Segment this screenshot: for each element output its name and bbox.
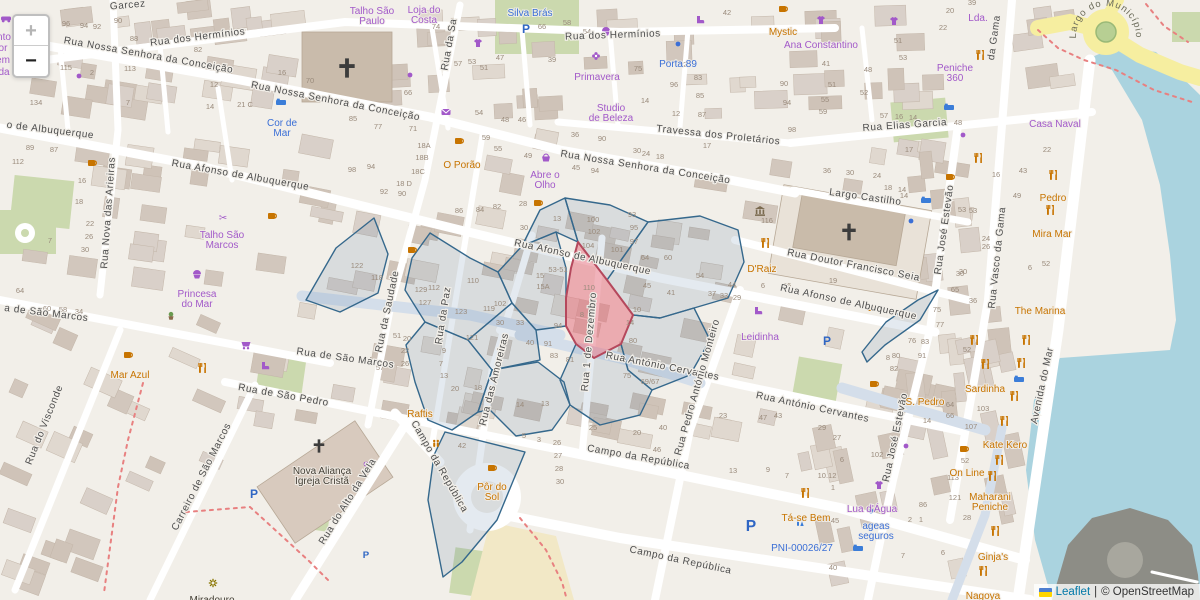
house-number: 59 <box>482 133 490 142</box>
poi-label: da <box>0 67 10 78</box>
house-number: 94 <box>554 321 562 330</box>
house-number: 18C <box>411 167 425 176</box>
house-number: 129 <box>415 285 428 294</box>
house-number: 64 <box>946 400 954 409</box>
building <box>740 77 756 88</box>
poi-label: Silva Brás <box>507 8 552 19</box>
house-number: 22 <box>401 346 409 355</box>
house-number: 2 <box>90 68 94 77</box>
house-number: 41 <box>822 59 830 68</box>
house-number: 14 <box>206 102 214 111</box>
poi-label: Ana Constantino <box>784 40 858 51</box>
house-number: 3 <box>537 435 541 444</box>
house-number: 127 <box>419 298 432 307</box>
svg-text:P: P <box>823 334 831 348</box>
poi-label: Talho SãoMarcos <box>200 230 245 251</box>
house-number: 104 <box>582 241 595 250</box>
house-number: 18 D <box>396 179 412 188</box>
house-number: 7 <box>126 98 130 107</box>
poi-label: Sardinha <box>965 384 1005 395</box>
house-number: 6 <box>761 281 765 290</box>
house-number: 14 <box>923 416 931 425</box>
house-number: 7 <box>901 551 905 560</box>
house-number: 30 <box>520 223 528 232</box>
poi-label: ageasseguros <box>858 521 894 542</box>
house-number: 20 <box>946 6 954 15</box>
house-number: 85 <box>349 114 357 123</box>
house-number: 52 <box>860 88 868 97</box>
house-number: 58 <box>563 18 571 27</box>
house-number: 22 <box>86 219 94 228</box>
house-number: 48 <box>864 65 872 74</box>
house-number: 48 <box>501 115 509 124</box>
house-number: 90 <box>598 134 606 143</box>
building <box>256 253 286 274</box>
house-number: 94 <box>591 166 599 175</box>
house-number: 30 <box>556 477 564 486</box>
house-number: 44 <box>728 280 736 289</box>
house-number: 110 <box>467 276 479 285</box>
poi-label: Loja doCosta <box>408 5 441 26</box>
poi-label: Nagoya <box>966 591 1001 600</box>
poi-label: em <box>0 55 10 66</box>
house-number: 66 <box>404 88 412 97</box>
building <box>499 172 524 196</box>
house-number: 86 <box>919 500 927 509</box>
house-number: 69/67 <box>641 377 660 386</box>
house-number: 52 <box>963 345 971 354</box>
house-number: 102 <box>494 299 507 308</box>
house-number: 115 <box>60 63 72 72</box>
house-number: 92 <box>380 187 388 196</box>
house-number: 45 <box>572 163 580 172</box>
house-number: 121 <box>949 493 962 502</box>
house-number: 36 <box>969 296 977 305</box>
poi-label: Princesado Mar <box>178 289 217 310</box>
parking-icon: P <box>250 487 258 501</box>
svg-text:P: P <box>250 487 258 501</box>
house-number: 103 <box>977 404 990 413</box>
house-number: 66 <box>538 22 546 31</box>
building <box>67 255 98 278</box>
poi-label: Mystic <box>769 27 797 38</box>
house-number: 87 <box>698 110 706 119</box>
house-number: 40 <box>659 423 667 432</box>
house-number: 15A <box>536 282 549 291</box>
poi-label: Ginja's <box>978 552 1008 563</box>
house-number: 48 <box>954 118 962 127</box>
attribution-separator: | <box>1094 586 1097 598</box>
building <box>922 74 944 90</box>
house-number: 85 <box>696 91 704 100</box>
poi-label: Kate Kero <box>983 440 1028 451</box>
house-number: 6 <box>941 548 945 557</box>
house-number: 53 <box>468 57 476 66</box>
house-number: 82 <box>493 202 501 211</box>
house-number: 122 <box>351 261 364 270</box>
house-number: 83 <box>550 351 558 360</box>
poi-label: S. Pedro <box>906 397 945 408</box>
dot-icon <box>904 444 909 449</box>
attribution-bar: Leaflet | © OpenStreetMap <box>1034 584 1200 600</box>
zoom-control: + − <box>12 14 50 78</box>
ukraine-flag-icon <box>1039 588 1052 597</box>
house-number: 15 <box>536 271 544 280</box>
poi-label: Raftis <box>407 409 433 420</box>
house-number: 26 <box>401 359 409 368</box>
poi-label: or <box>0 43 8 54</box>
building <box>919 151 934 179</box>
house-number: 36 <box>571 130 579 139</box>
house-number: 40 <box>829 563 837 572</box>
house-number: 76 <box>908 336 916 345</box>
house-number: 51 <box>393 331 401 340</box>
building <box>246 16 263 30</box>
house-number: 18 <box>656 152 664 161</box>
house-number: 25 <box>589 423 597 432</box>
house-number: 46 <box>653 445 661 454</box>
house-number: 54 <box>475 108 483 117</box>
house-number: 14 <box>626 318 634 327</box>
fortress-court <box>1107 542 1143 578</box>
house-number: 53 <box>899 53 907 62</box>
building <box>869 147 886 165</box>
house-number: 28 <box>555 464 563 473</box>
house-number: 29 <box>818 423 826 432</box>
map-viewport[interactable]: PPPPP✂9694929088868211521131347121421 C8… <box>0 0 1200 600</box>
house-number: 29 <box>733 293 741 302</box>
building <box>254 411 275 429</box>
house-number: 41 <box>667 288 675 297</box>
house-number: 12 <box>672 109 680 118</box>
house-number: 21 C <box>237 100 253 109</box>
house-number: 18A <box>417 141 430 150</box>
poi-label: D'Raiz <box>747 264 776 275</box>
house-number: 20 <box>403 334 411 343</box>
poi-label: Primavera <box>574 72 620 83</box>
house-number: 87 <box>50 145 58 154</box>
house-number: 43 <box>1019 166 1027 175</box>
house-number: 134 <box>30 98 43 107</box>
house-number: 8 <box>886 353 890 362</box>
dot-icon <box>676 42 681 47</box>
house-number: 17 <box>905 145 913 154</box>
house-number: 9 <box>766 465 770 474</box>
poi-label: MaharaniPeniche <box>969 492 1011 513</box>
house-number: 17 <box>703 141 711 150</box>
house-number: 75 <box>933 305 941 314</box>
house-number: 6 <box>840 455 844 464</box>
house-number: 86 <box>455 206 463 215</box>
house-number: 54 <box>696 271 704 280</box>
zoom-out-button[interactable]: − <box>14 46 48 76</box>
house-number: 5 <box>522 431 526 440</box>
house-number: 30 <box>496 318 504 327</box>
house-number: 65 <box>951 285 959 294</box>
mail-icon <box>442 109 451 115</box>
house-number: 57 <box>454 59 462 68</box>
house-number: 30 <box>633 146 641 155</box>
building <box>888 68 905 90</box>
dot-icon <box>408 73 413 78</box>
house-number: 52 <box>1042 259 1050 268</box>
house-number: 51 <box>480 63 488 72</box>
house-number: 39 <box>548 55 556 64</box>
house-number: 90 <box>398 189 406 198</box>
house-number: 18B <box>415 153 428 162</box>
poi-label: Lda. <box>968 13 987 24</box>
house-number: 59 <box>819 107 827 116</box>
building <box>499 31 517 44</box>
house-number: 13 <box>541 399 549 408</box>
dot-icon <box>961 133 966 138</box>
building <box>472 64 505 80</box>
house-number: 83 <box>921 337 929 346</box>
house-number: 110 <box>583 283 595 292</box>
house-number: 10 <box>633 305 641 314</box>
house-number: 28 <box>963 513 971 522</box>
poi-label: Mar Azul <box>111 370 150 381</box>
house-number: 89 <box>26 143 34 152</box>
house-number: 71 <box>409 124 417 133</box>
house-number: 100 <box>587 215 600 224</box>
zoom-in-button[interactable]: + <box>14 16 48 46</box>
house-number: 14 <box>641 96 649 105</box>
house-number: 39 <box>968 0 976 7</box>
roundabout-island <box>21 229 29 237</box>
house-number: 57 <box>880 111 888 120</box>
poi-label: Leidinha <box>741 332 779 343</box>
house-number: 49 <box>1013 191 1021 200</box>
house-number: 26 <box>85 232 93 241</box>
house-number: 7 <box>48 236 52 245</box>
building <box>131 267 165 291</box>
house-number: 16 <box>78 176 86 185</box>
house-number: 22 <box>1043 145 1051 154</box>
house-number: 9 <box>442 346 446 355</box>
house-number: 96 <box>670 80 678 89</box>
leaflet-link[interactable]: Leaflet <box>1056 586 1091 598</box>
house-number: 75 <box>623 371 631 380</box>
house-number: 43 <box>774 411 782 420</box>
poi-label: Tá-se Bem <box>782 513 831 524</box>
house-number: 55 <box>821 95 829 104</box>
building <box>204 270 224 287</box>
scissors-icon: ✂ <box>219 213 227 224</box>
house-number: 93 <box>628 210 636 219</box>
house-number: 53-51 <box>548 265 567 274</box>
house-number: 10.12 <box>818 471 837 480</box>
house-number: 42 <box>723 8 731 17</box>
house-number: 84 <box>476 205 484 214</box>
house-number: 112 <box>12 157 24 166</box>
svg-text:✂: ✂ <box>219 213 227 224</box>
house-number: 27 <box>833 433 841 442</box>
house-number: 40 <box>526 338 534 347</box>
house-number: 23 <box>719 411 727 420</box>
house-number: 77 <box>374 122 382 131</box>
house-number: 90 <box>780 79 788 88</box>
house-number: 98 <box>348 165 356 174</box>
house-number: 90 <box>114 16 122 25</box>
house-number: 26 <box>553 438 561 447</box>
poi-label: The Marina <box>1015 306 1066 317</box>
house-number: 60 <box>664 253 672 262</box>
house-number: 92 <box>93 22 101 31</box>
building <box>790 51 818 68</box>
house-number: 118 <box>371 273 383 282</box>
house-number: 46 <box>518 115 526 124</box>
house-number: 53 <box>958 205 966 214</box>
parking-icon: P <box>823 334 831 348</box>
largo-island <box>1096 22 1116 42</box>
house-number: 101 <box>611 245 624 254</box>
house-number: 45 <box>831 516 839 525</box>
house-number: 107 <box>965 422 978 431</box>
poi-label: Lua d'Água <box>847 502 898 515</box>
house-number: 75 <box>634 64 642 73</box>
house-number: 1 <box>831 483 835 492</box>
poi-label: Pedro <box>1040 193 1067 204</box>
house-number: 47 <box>759 413 767 422</box>
house-number: 30 <box>846 168 854 177</box>
dot-icon <box>77 74 82 79</box>
house-number: 26 <box>982 242 990 251</box>
house-number: 81 <box>566 355 574 364</box>
house-number: 20 <box>451 384 459 393</box>
building <box>539 96 563 112</box>
house-number: 18 <box>75 197 83 206</box>
parking-icon: P <box>746 518 756 535</box>
osm-copyright: © OpenStreetMap <box>1101 586 1194 598</box>
parking-icon: P <box>363 550 370 561</box>
dot-icon <box>909 219 914 224</box>
building <box>140 205 167 224</box>
house-number: 2 <box>908 515 912 524</box>
poi-label: Mira Mar <box>1032 229 1072 240</box>
poi-label: O Porão <box>443 160 481 171</box>
house-number: 7 <box>785 471 789 480</box>
house-number: 102 <box>871 450 884 459</box>
house-number: 14 <box>898 185 906 194</box>
house-number: 116 <box>761 216 773 225</box>
house-number: 64 <box>641 253 649 262</box>
house-number: 121 <box>466 333 479 342</box>
house-number: 96 <box>62 19 70 28</box>
svg-text:P: P <box>363 550 370 561</box>
house-number: 94 <box>783 98 791 107</box>
building <box>80 63 97 79</box>
poi-label: Porta 89 <box>659 59 697 70</box>
house-number: 16 <box>992 170 1000 179</box>
house-number: 12 <box>210 80 218 89</box>
house-number: 37 <box>708 289 716 298</box>
house-number: 24 <box>642 149 650 158</box>
poi-label: On Line <box>949 468 984 479</box>
house-number: 45 <box>643 281 651 290</box>
house-number: 22 <box>939 23 947 32</box>
house-number: 95 <box>630 223 638 232</box>
house-number: 19 <box>829 276 837 285</box>
svg-text:P: P <box>746 518 756 535</box>
house-number: 94 <box>367 162 375 171</box>
house-number: 94 <box>80 21 88 30</box>
house-number: 102 <box>588 227 601 236</box>
house-number: 14 <box>516 400 524 409</box>
parking-icon: P <box>522 22 530 36</box>
house-number: 70 <box>306 76 314 85</box>
house-number: 20 <box>633 428 641 437</box>
house-number: 55 <box>494 144 502 153</box>
house-number: 33 <box>720 291 728 300</box>
house-number: 36 <box>823 166 831 175</box>
house-number: 16 <box>278 68 286 77</box>
house-number: 6 <box>1028 263 1032 272</box>
house-number: 88 <box>130 34 138 43</box>
house-number: 30 <box>81 245 89 254</box>
house-number: 82 <box>890 364 898 373</box>
house-number: 24 <box>873 171 881 180</box>
house-number: 30 <box>959 267 967 276</box>
house-number: 77 <box>936 320 944 329</box>
house-number: 97 <box>630 237 638 246</box>
house-number: 7 <box>439 359 443 368</box>
house-number: 112 <box>428 283 440 292</box>
house-number: 18 <box>474 383 482 392</box>
house-number: 28 <box>519 199 527 208</box>
building <box>218 145 249 167</box>
house-number: 53 <box>969 206 977 215</box>
house-number: 13 <box>729 466 737 475</box>
house-number: 91 <box>544 339 552 348</box>
house-number: 49 <box>524 151 532 160</box>
building <box>128 244 154 262</box>
house-number: 66 <box>946 411 954 420</box>
poi-label: Casa Naval <box>1029 119 1081 130</box>
house-number: 27 <box>554 451 562 460</box>
building <box>298 302 317 319</box>
house-number: 13 <box>440 371 448 380</box>
house-number: 83 <box>694 73 702 82</box>
building <box>793 73 827 95</box>
house-number: 80 <box>629 336 637 345</box>
house-number: 18 <box>884 183 892 192</box>
building <box>770 159 792 178</box>
building <box>874 5 906 26</box>
map-canvas[interactable]: PPPPP✂9694929088868211521131347121421 C8… <box>0 0 1200 600</box>
house-number: 64 <box>16 286 24 295</box>
building <box>959 227 981 253</box>
house-number: 13 <box>553 214 561 223</box>
building <box>705 108 722 119</box>
house-number: 8 <box>580 310 584 319</box>
house-number: 33 <box>516 318 524 327</box>
poi-label: nto <box>0 32 11 43</box>
house-number: 113 <box>124 64 136 73</box>
green-area <box>1172 12 1200 42</box>
house-number: 98 <box>788 125 796 134</box>
house-number: 51 <box>894 36 902 45</box>
house-number: 52 <box>961 456 969 465</box>
poi-label: Nova AliançaIgreja Cristã <box>293 466 352 487</box>
house-number: 42 <box>458 441 466 450</box>
poi-label: Miradouro <box>189 595 234 600</box>
house-number: 80 <box>892 351 900 360</box>
house-number: 123 <box>455 307 468 316</box>
house-number: 51 <box>828 80 836 89</box>
house-number: 1 <box>919 515 923 524</box>
poi-label: PNI-00026/27 <box>771 543 833 554</box>
